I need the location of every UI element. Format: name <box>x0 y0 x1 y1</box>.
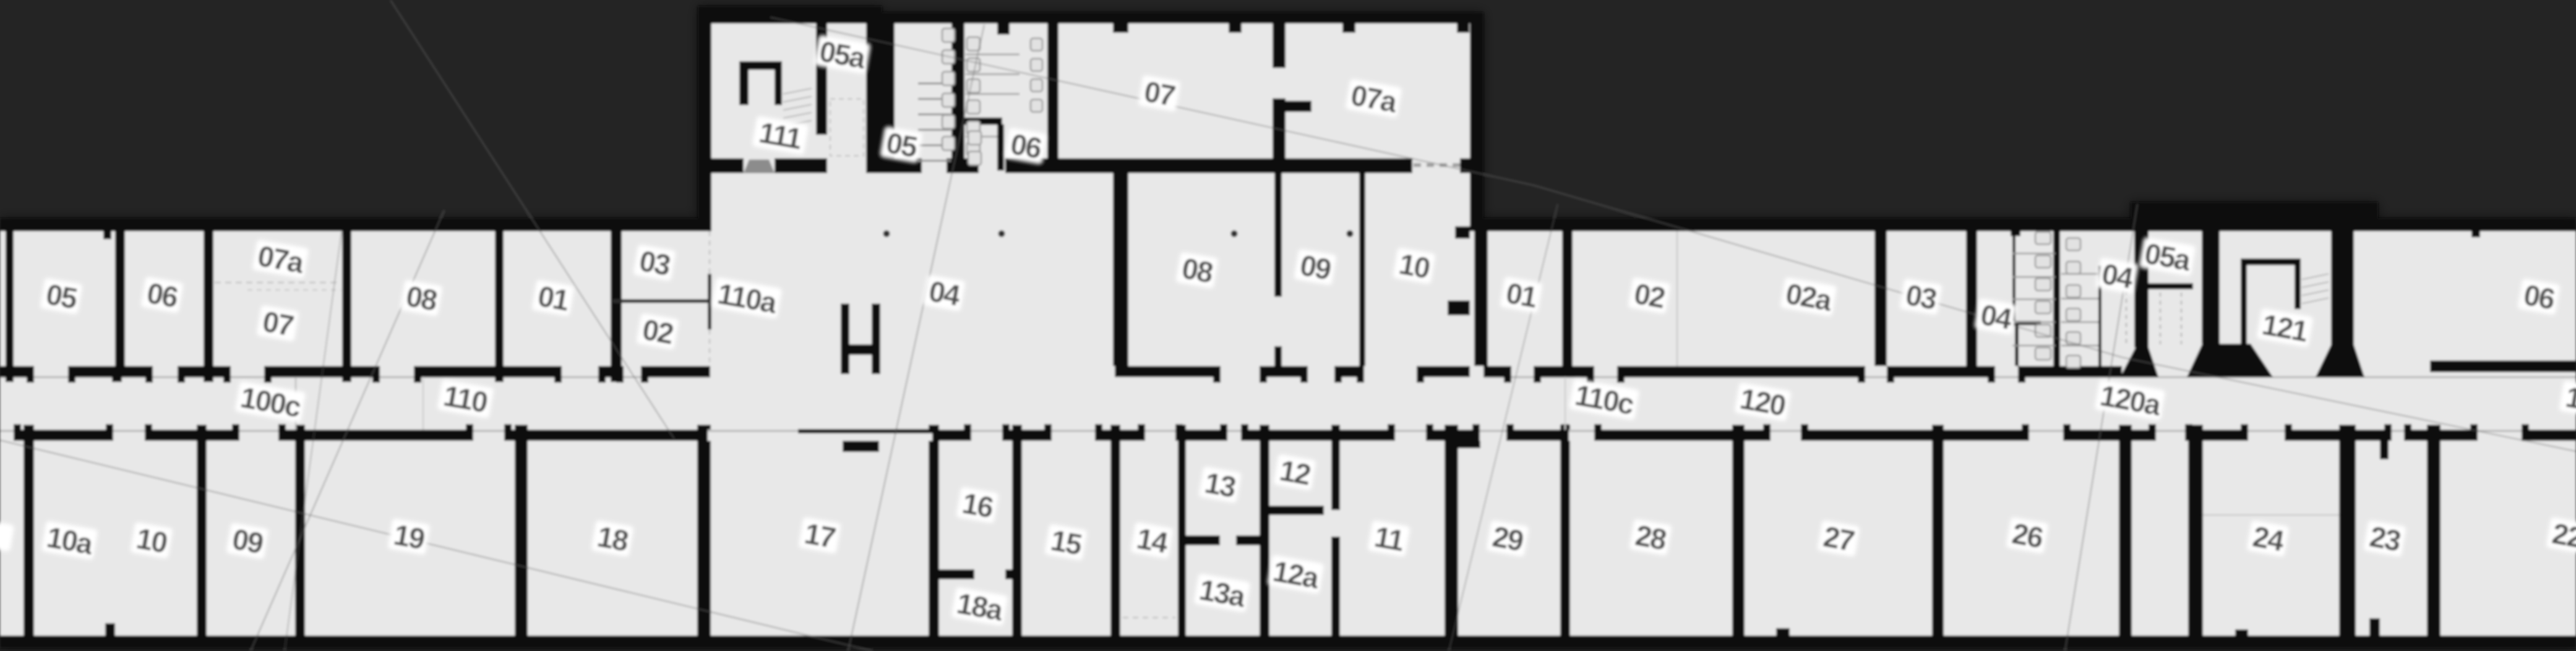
svg-text:02: 02 <box>640 313 676 351</box>
svg-text:29: 29 <box>1490 520 1526 558</box>
svg-text:13: 13 <box>1203 466 1239 504</box>
svg-text:19: 19 <box>392 518 427 556</box>
svg-text:09: 09 <box>1298 249 1334 286</box>
svg-text:10: 10 <box>134 522 170 560</box>
svg-text:07: 07 <box>260 305 296 343</box>
svg-text:02: 02 <box>1632 277 1668 315</box>
svg-text:05: 05 <box>44 278 80 315</box>
svg-text:15: 15 <box>1049 524 1084 561</box>
svg-text:17: 17 <box>802 517 838 555</box>
svg-text:26: 26 <box>2010 517 2046 555</box>
svg-text:12: 12 <box>1277 454 1313 491</box>
svg-text:01: 01 <box>536 279 572 317</box>
svg-text:27: 27 <box>1821 520 1857 558</box>
svg-text:10: 10 <box>1397 247 1433 285</box>
svg-text:18: 18 <box>595 520 631 558</box>
svg-text:08: 08 <box>404 279 440 317</box>
svg-text:28: 28 <box>1633 519 1669 556</box>
svg-text:03: 03 <box>637 244 673 282</box>
svg-text:01: 01 <box>1504 276 1540 314</box>
svg-text:07: 07 <box>1142 75 1178 113</box>
svg-text:05: 05 <box>884 126 920 164</box>
svg-text:23: 23 <box>2368 520 2403 558</box>
svg-text:03: 03 <box>1904 278 1939 316</box>
svg-text:08: 08 <box>1180 252 1216 289</box>
svg-text:09: 09 <box>230 522 266 560</box>
svg-text:16: 16 <box>960 487 996 524</box>
svg-text:06: 06 <box>145 276 181 314</box>
svg-text:06: 06 <box>2522 278 2557 316</box>
svg-text:06: 06 <box>1008 127 1044 165</box>
